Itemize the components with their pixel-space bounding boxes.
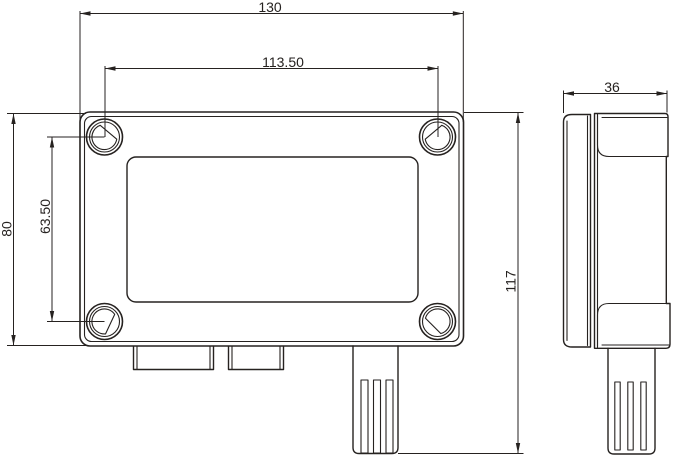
dimension-label: 113.50 bbox=[262, 54, 304, 70]
enclosure-outline bbox=[80, 112, 464, 346]
body-outline bbox=[595, 114, 671, 349]
drawing-sheet: 130 113.50 80 63.50 117 bbox=[0, 0, 673, 464]
probe-vent-slot bbox=[361, 380, 368, 453]
display-window bbox=[127, 157, 418, 302]
side-body bbox=[595, 114, 671, 349]
probe-vent-slot bbox=[615, 382, 620, 450]
side-lid bbox=[564, 115, 591, 348]
arrowhead-icon bbox=[428, 66, 439, 70]
front-view bbox=[80, 112, 464, 454]
arrowhead-icon bbox=[105, 66, 116, 70]
sensor-probe-front bbox=[353, 346, 398, 454]
arrowhead-icon bbox=[11, 335, 15, 346]
screw-inner-circle bbox=[423, 307, 453, 337]
arrowhead-icon bbox=[453, 11, 464, 15]
dimension-hole-spacing-horizontal: 113.50 bbox=[105, 54, 438, 137]
probe-vent-slot bbox=[628, 382, 633, 450]
flange-bottom-edge bbox=[598, 304, 670, 348]
dimension-overall-height: 117 bbox=[398, 113, 524, 454]
dimension-label: 130 bbox=[258, 0, 282, 15]
dimension-label: 117 bbox=[503, 270, 519, 293]
arrowhead-icon bbox=[516, 113, 520, 124]
arrowhead-icon bbox=[50, 137, 54, 148]
flange-top-edge bbox=[598, 114, 668, 157]
sensor-probe-side bbox=[608, 348, 655, 454]
cable-gland-right bbox=[229, 347, 284, 370]
arrowhead-icon bbox=[657, 91, 668, 95]
probe-outline bbox=[353, 346, 398, 454]
probe-vent-slot bbox=[641, 382, 646, 450]
dimension-label: 36 bbox=[604, 79, 620, 95]
arrowhead-icon bbox=[516, 443, 520, 454]
dimension-depth: 36 bbox=[564, 79, 668, 113]
probe-vent-slot bbox=[374, 380, 381, 453]
arrowhead-icon bbox=[50, 311, 54, 322]
arrowhead-icon bbox=[80, 11, 91, 15]
probe-vent-slot bbox=[386, 380, 393, 453]
cable-gland-left bbox=[134, 347, 214, 370]
side-view bbox=[564, 114, 671, 455]
gland-outline bbox=[229, 347, 284, 370]
technical-drawing: 130 113.50 80 63.50 117 bbox=[0, 0, 673, 464]
screw-bottom-right bbox=[420, 304, 456, 340]
dimension-label: 63.50 bbox=[37, 199, 53, 234]
dimension-label: 80 bbox=[0, 221, 15, 237]
arrowhead-icon bbox=[11, 114, 15, 125]
gland-outline bbox=[134, 347, 214, 370]
enclosure-lid-edge bbox=[85, 117, 460, 342]
arrowhead-icon bbox=[564, 91, 575, 95]
dimension-hole-spacing-vertical: 63.50 bbox=[37, 137, 105, 322]
